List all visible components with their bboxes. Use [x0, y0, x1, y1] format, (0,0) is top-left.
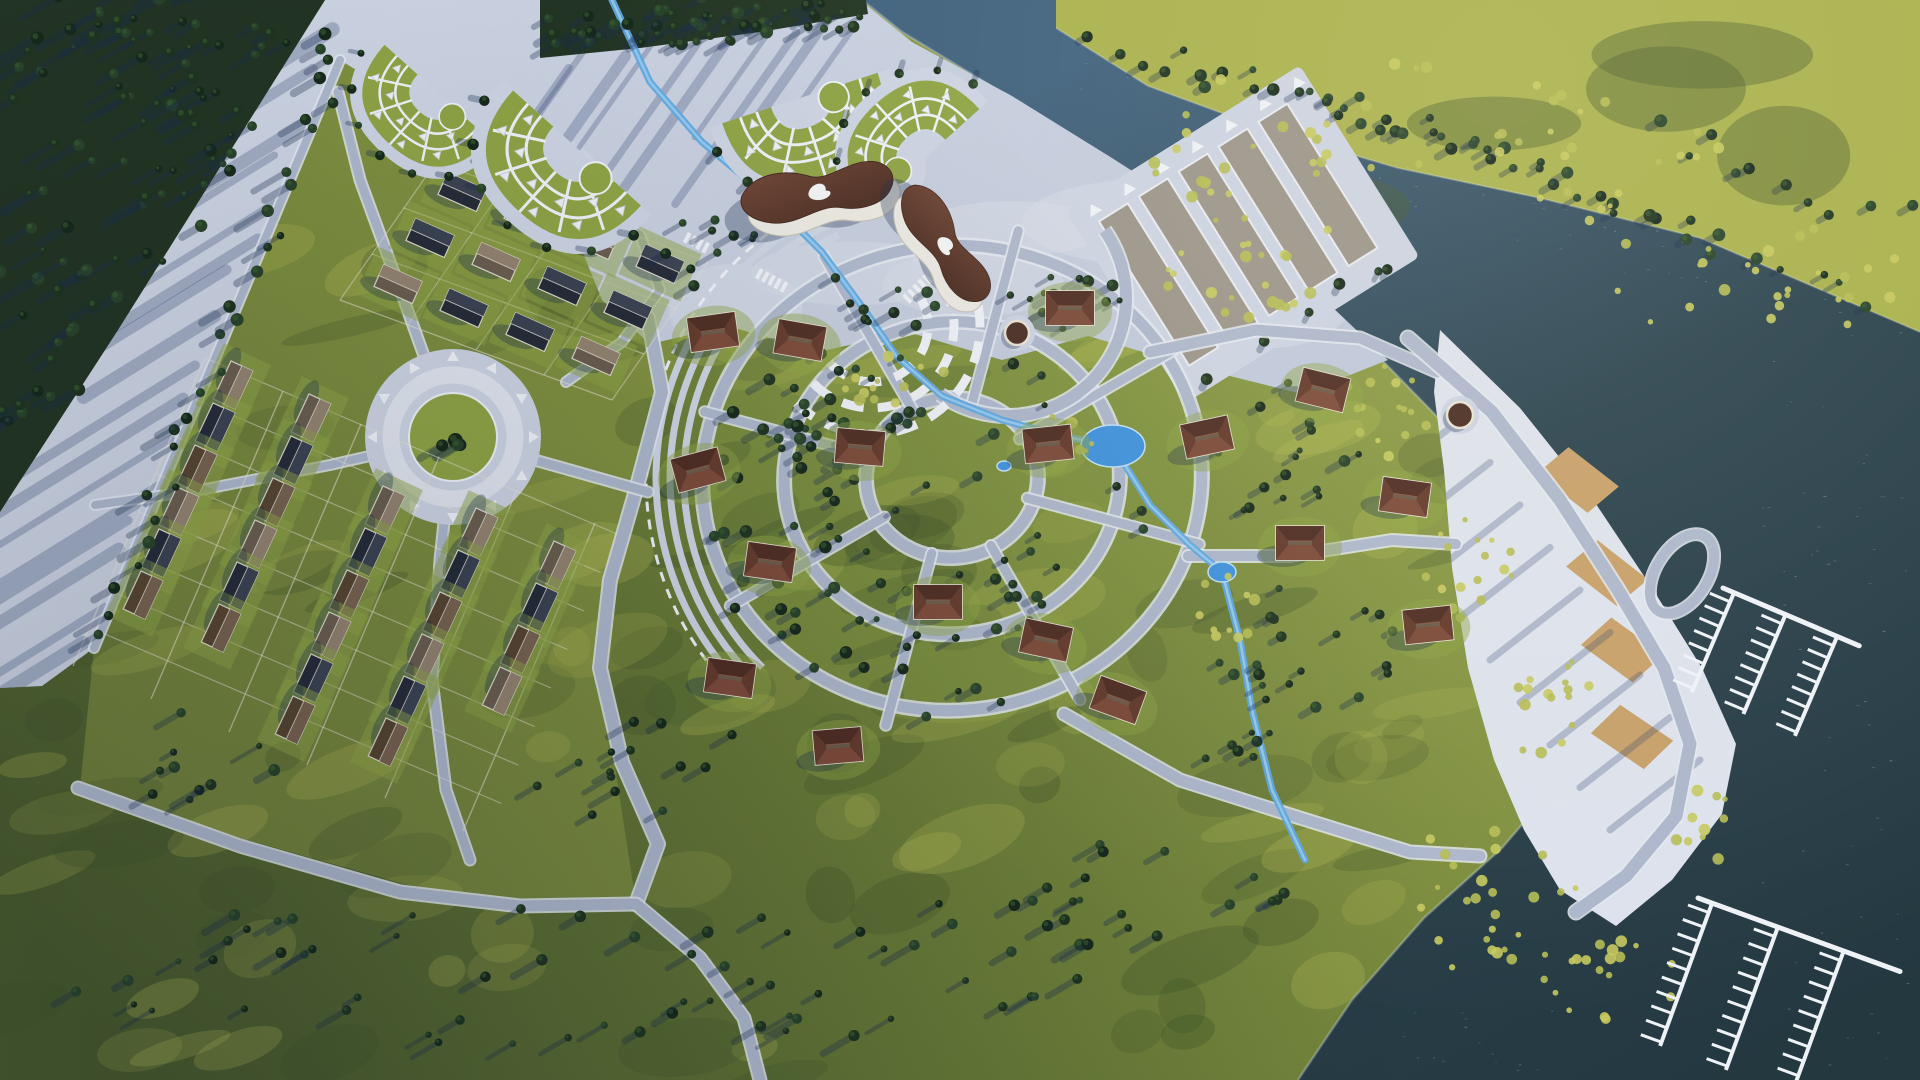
- masterplan-scene: [0, 0, 1920, 1080]
- aerial-masterplan-render: [0, 0, 1920, 1080]
- shadow-vignette: [0, 0, 1920, 1080]
